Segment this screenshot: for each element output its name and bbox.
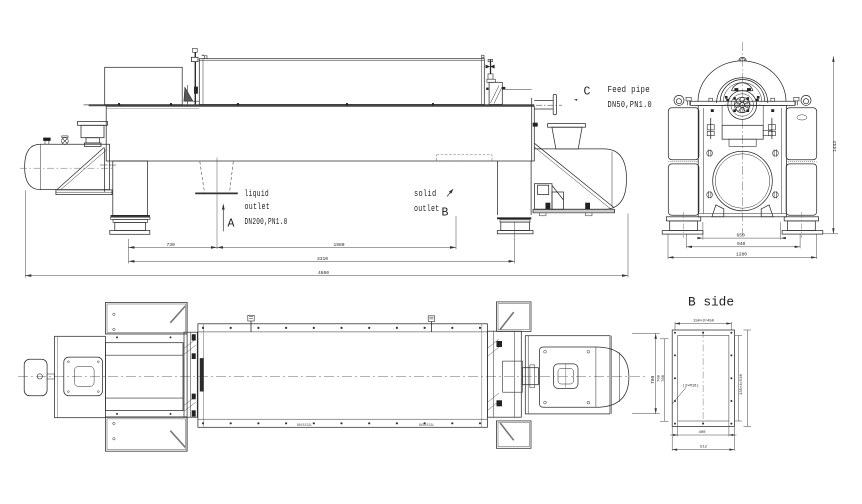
svg-text:780: 780	[662, 374, 666, 382]
svg-text:4860: 4860	[318, 270, 329, 276]
svg-text:150×3=450: 150×3=450	[693, 319, 715, 324]
svg-text:outlet: outlet	[414, 203, 440, 214]
svg-text:B side: B side	[688, 295, 734, 310]
svg-text:1443: 1443	[832, 141, 838, 152]
svg-text:A: A	[228, 218, 235, 231]
svg-text:B855S33L: B855S33L	[297, 423, 312, 427]
svg-text:1980: 1980	[334, 242, 345, 248]
svg-text:700: 700	[658, 374, 662, 382]
svg-text:135×4=540: 135×4=540	[739, 373, 744, 395]
svg-text:B: B	[442, 207, 449, 220]
svg-text:730: 730	[167, 242, 176, 248]
svg-text:liquid: liquid	[245, 188, 270, 199]
svg-text:outlet: outlet	[245, 201, 271, 212]
svg-text:solid: solid	[414, 188, 437, 199]
svg-text:780: 780	[650, 375, 656, 384]
svg-text:DN50,PN1.0: DN50,PN1.0	[608, 99, 653, 110]
svg-text:650: 650	[737, 232, 746, 238]
svg-text:Feed pipe: Feed pipe	[608, 84, 651, 95]
svg-text:B855S33L: B855S33L	[419, 423, 434, 427]
svg-text:C: C	[584, 86, 591, 99]
svg-text:DN200,PN1.0: DN200,PN1.0	[245, 216, 288, 227]
svg-text:3310: 3310	[317, 256, 328, 262]
svg-text:1280: 1280	[736, 252, 747, 258]
svg-text:512: 512	[700, 445, 708, 449]
svg-text:(2×M16): (2×M16)	[683, 384, 699, 389]
svg-text:B0S5-S301: B0S5-S301	[101, 164, 117, 167]
svg-text:940: 940	[737, 241, 746, 247]
svg-text:400: 400	[699, 431, 707, 435]
